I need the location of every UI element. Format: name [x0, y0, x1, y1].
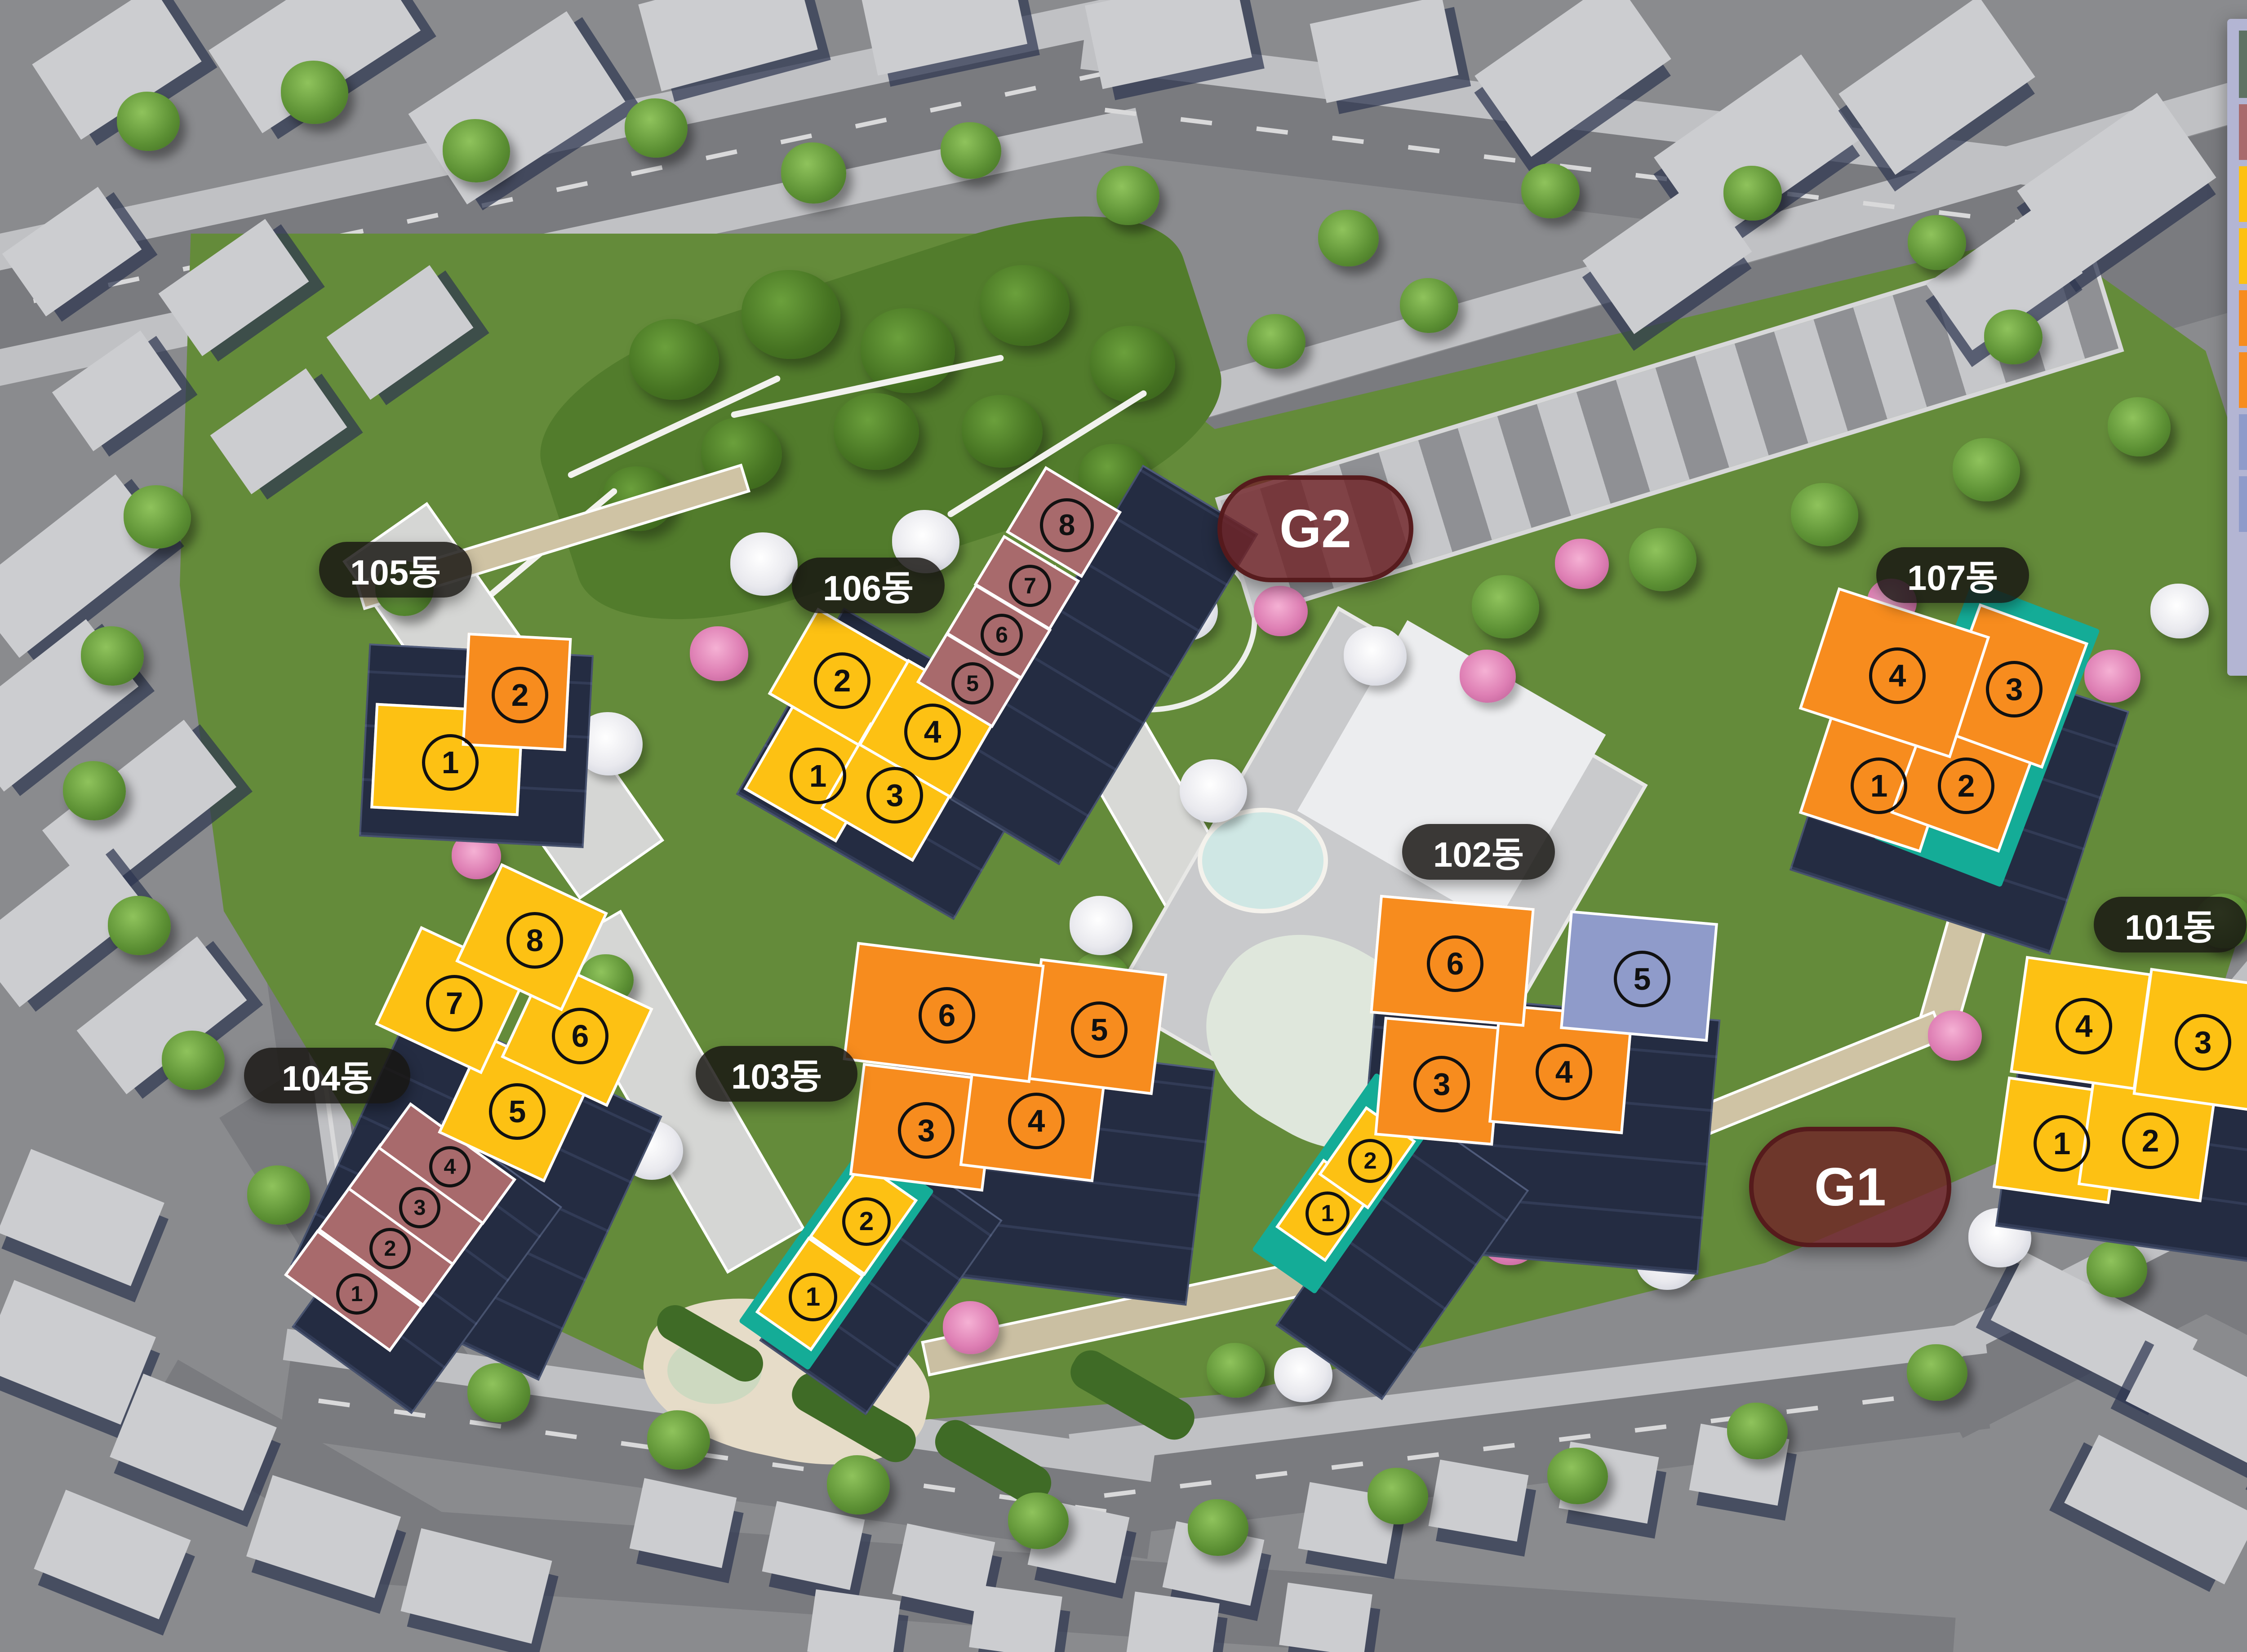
unit-number-103동-1: 1 — [789, 1273, 837, 1321]
green-tree — [1097, 166, 1159, 225]
legend-row-59A: 59A367세대 — [2239, 166, 2247, 222]
legend-row-59T: 59T16세대 — [2239, 228, 2247, 284]
green-tree — [1908, 215, 1966, 270]
green-tree — [1188, 1499, 1248, 1556]
white-tree — [1070, 896, 1132, 955]
unit-number-104동-7: 7 — [426, 975, 483, 1032]
green-tree — [781, 142, 846, 204]
green-tree — [2108, 397, 2171, 456]
unit-number-101동-1: 1 — [2034, 1115, 2090, 1172]
green-tree — [1472, 575, 1539, 638]
unit-number-104동-4: 4 — [429, 1146, 471, 1187]
legend-type-114A: 114A — [2239, 414, 2247, 470]
legend-type-59A: 59A — [2239, 166, 2247, 222]
green-tree — [124, 485, 191, 549]
unit-number-103동-3: 3 — [898, 1102, 955, 1159]
perimeter-building — [2064, 1435, 2247, 1584]
unit-number-104동-6: 6 — [552, 1008, 608, 1064]
perimeter-building — [1279, 1582, 1372, 1652]
legend-type-114T: 114T — [2239, 476, 2247, 532]
unit-number-102동-2: 2 — [1348, 1139, 1392, 1183]
unit-number-106동-4: 4 — [904, 704, 961, 760]
unit-number-103동-2: 2 — [842, 1197, 891, 1246]
unit-number-106동-2: 2 — [814, 652, 870, 709]
green-tree — [1247, 314, 1306, 369]
legend-type-84T: 84T — [2239, 352, 2247, 408]
unit-number-103동-6: 6 — [919, 987, 975, 1044]
building-label-105동: 105동 — [319, 542, 472, 598]
green-tree — [2087, 1241, 2147, 1298]
unit-number-102동-3: 3 — [1413, 1056, 1470, 1112]
unit-number-106동-6: 6 — [981, 614, 1023, 656]
legend-row-142P: 142P2세대 — [2239, 600, 2247, 656]
legend-header-type: 타입 — [2239, 31, 2247, 98]
green-tree — [281, 61, 348, 124]
unit-number-104동-8: 8 — [506, 912, 563, 969]
park-bush — [834, 393, 919, 470]
site-plan-canvas: 12123456781234123456123412345678123456 1… — [0, 0, 2247, 1652]
unit-number-104동-2: 2 — [369, 1228, 411, 1269]
green-tree — [247, 1165, 310, 1225]
white-tree — [2150, 584, 2209, 638]
unit-number-104동-1: 1 — [336, 1273, 377, 1315]
green-tree — [941, 122, 1001, 179]
legend-type-84A: 84A — [2239, 290, 2247, 346]
unit-number-102동-5: 5 — [1614, 951, 1670, 1007]
unit-number-105동-1: 1 — [422, 734, 479, 791]
pink-tree — [1555, 539, 1609, 589]
unit-number-106동-3: 3 — [866, 767, 923, 824]
unit-number-107동-2: 2 — [1938, 757, 1994, 814]
legend-row-125P: 125P4세대 — [2239, 538, 2247, 594]
building-label-104동: 104동 — [244, 1048, 410, 1103]
green-tree — [1723, 166, 1782, 221]
legend-table: 타입 세대수 50A108세대59A367세대59T16세대84A327세대84… — [2227, 19, 2247, 676]
park-bush — [629, 319, 719, 400]
green-tree — [1318, 210, 1379, 267]
legend-type-142P: 142P — [2239, 600, 2247, 656]
pink-tree — [1928, 1010, 1982, 1061]
green-tree — [443, 119, 510, 182]
green-tree — [647, 1410, 710, 1470]
green-tree — [1008, 1493, 1069, 1550]
unit-number-103동-4: 4 — [1008, 1093, 1065, 1149]
unit-number-102동-1: 1 — [1306, 1191, 1350, 1236]
green-tree — [1984, 310, 2043, 364]
unit-number-106동-5: 5 — [951, 662, 994, 705]
perimeter-building — [969, 1585, 1062, 1652]
legend-row-84T: 84T10세대 — [2239, 352, 2247, 408]
pink-tree — [1254, 586, 1308, 637]
legend-row-114T: 114T2세대 — [2239, 476, 2247, 532]
gate-label-G1: G1 — [1749, 1127, 1951, 1247]
green-tree — [1368, 1468, 1428, 1525]
park-bush — [962, 395, 1043, 468]
park-bush — [1090, 326, 1175, 403]
green-tree — [1953, 438, 2020, 501]
legend-row-84A: 84A327세대 — [2239, 290, 2247, 346]
pink-tree — [2084, 650, 2140, 703]
pink-tree — [943, 1301, 999, 1354]
unit-number-107동-4: 4 — [1869, 647, 1926, 704]
unit-number-104동-3: 3 — [399, 1187, 440, 1228]
legend-row-114A: 114A34세대 — [2239, 414, 2247, 470]
green-tree — [1207, 1343, 1265, 1398]
green-tree — [1521, 164, 1580, 218]
park-bush — [742, 270, 840, 359]
white-tree — [1180, 759, 1247, 823]
green-tree — [63, 761, 126, 820]
unit-number-102동-4: 4 — [1536, 1044, 1592, 1100]
perimeter-building — [34, 1490, 191, 1620]
green-tree — [1547, 1448, 1608, 1505]
unit-number-104동-5: 5 — [489, 1083, 546, 1140]
building-label-107동: 107동 — [1876, 547, 2029, 603]
unit-number-101동-3: 3 — [2175, 1014, 2231, 1071]
green-tree — [162, 1031, 225, 1090]
white-tree — [730, 532, 798, 596]
unit-number-106동-1: 1 — [790, 748, 846, 804]
unit-number-107동-1: 1 — [1851, 757, 1907, 814]
legend-type-59T: 59T — [2239, 228, 2247, 284]
building-label-106동: 106동 — [792, 558, 945, 613]
green-tree — [1907, 1344, 1967, 1401]
pink-tree — [690, 626, 748, 681]
perimeter-building — [0, 1149, 164, 1286]
green-tree — [1727, 1403, 1788, 1460]
unit-number-102동-6: 6 — [1427, 935, 1483, 992]
building-label-101동: 101동 — [2094, 897, 2247, 952]
white-tree — [1344, 626, 1407, 686]
legend-header-row: 타입 세대수 — [2239, 31, 2247, 98]
unit-number-101동-2: 2 — [2122, 1112, 2179, 1169]
green-tree — [1400, 278, 1458, 333]
green-tree — [827, 1455, 890, 1515]
unit-number-107동-3: 3 — [1986, 661, 2043, 717]
green-tree — [1629, 528, 1696, 591]
pink-tree — [1460, 650, 1516, 703]
unit-number-106동-8: 8 — [1040, 498, 1094, 553]
legend-type-125P: 125P — [2239, 538, 2247, 594]
unit-number-101동-4: 4 — [2056, 998, 2112, 1054]
green-tree — [1791, 483, 1858, 546]
green-tree — [81, 626, 144, 686]
unit-number-105동-2: 2 — [492, 667, 548, 723]
green-tree — [625, 98, 688, 158]
green-tree — [117, 92, 180, 151]
unit-number-103동-5: 5 — [1071, 1001, 1128, 1058]
unit-number-106동-7: 7 — [1009, 565, 1052, 607]
building-label-102동: 102동 — [1402, 824, 1555, 880]
green-tree — [108, 896, 171, 955]
gate-label-G2: G2 — [1217, 475, 1413, 582]
pond — [1198, 808, 1328, 913]
legend-type-50A: 50A — [2239, 104, 2247, 160]
building-label-103동: 103동 — [696, 1046, 857, 1102]
park-bush — [980, 265, 1070, 346]
legend-row-50A: 50A108세대 — [2239, 104, 2247, 160]
